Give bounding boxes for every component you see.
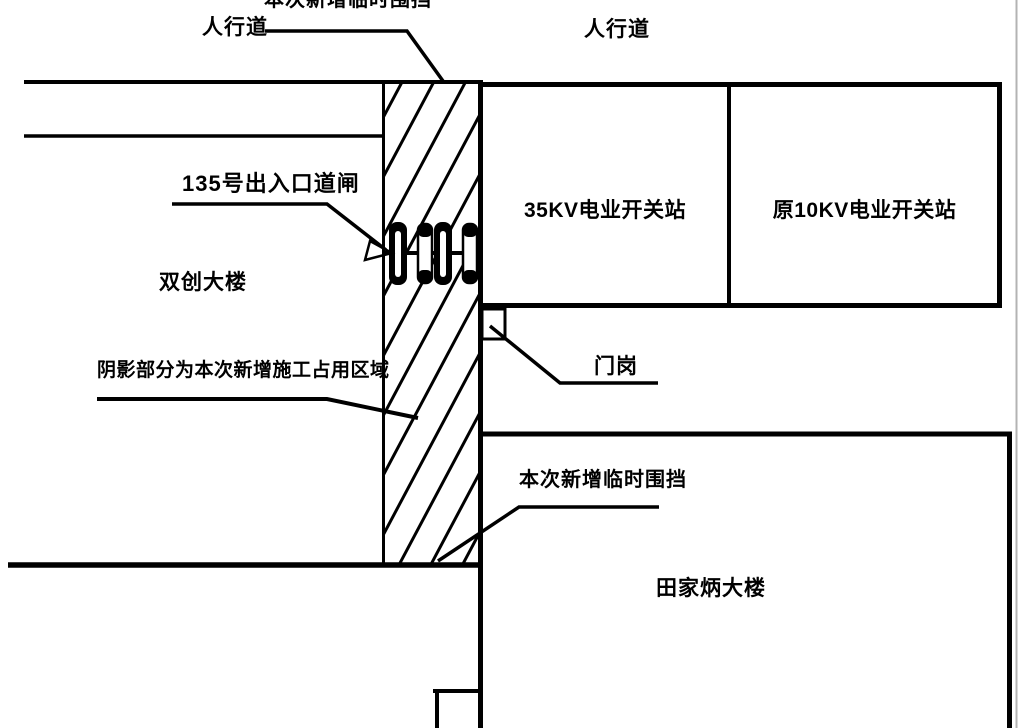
label-station-35kv: 35KV电业开关站 bbox=[481, 199, 729, 222]
label-top-fence: 本次新增临时围挡 bbox=[264, 0, 432, 11]
label-lower-fence: 本次新增临时围挡 bbox=[519, 469, 687, 491]
label-building-tianjiabing: 田家炳大楼 bbox=[656, 577, 766, 600]
gate-barrier-icon bbox=[384, 222, 479, 285]
label-gate: 135号出入口道闸 bbox=[182, 172, 360, 196]
construction-hatch-area bbox=[385, 84, 479, 563]
label-shaded-note: 阴影部分为本次新增施工占用区域 bbox=[97, 361, 390, 382]
label-sidewalk-left: 人行道 bbox=[202, 16, 268, 39]
label-guard-post: 门岗 bbox=[594, 355, 638, 378]
site-plan-diagram: 本次新增临时围挡 人行道 人行道 135号出入口道闸 双创大楼 35KV电业开关… bbox=[0, 0, 1020, 728]
leader-gate bbox=[172, 204, 386, 250]
label-station-10kv: 原10KV电业开关站 bbox=[729, 199, 1000, 222]
label-building-shuangchuang: 双创大楼 bbox=[159, 271, 247, 294]
label-sidewalk-right: 人行道 bbox=[584, 18, 650, 41]
leader-top-fence bbox=[265, 31, 443, 81]
building-35kv-outline bbox=[481, 85, 1000, 306]
leader-shaded-note bbox=[97, 399, 418, 418]
